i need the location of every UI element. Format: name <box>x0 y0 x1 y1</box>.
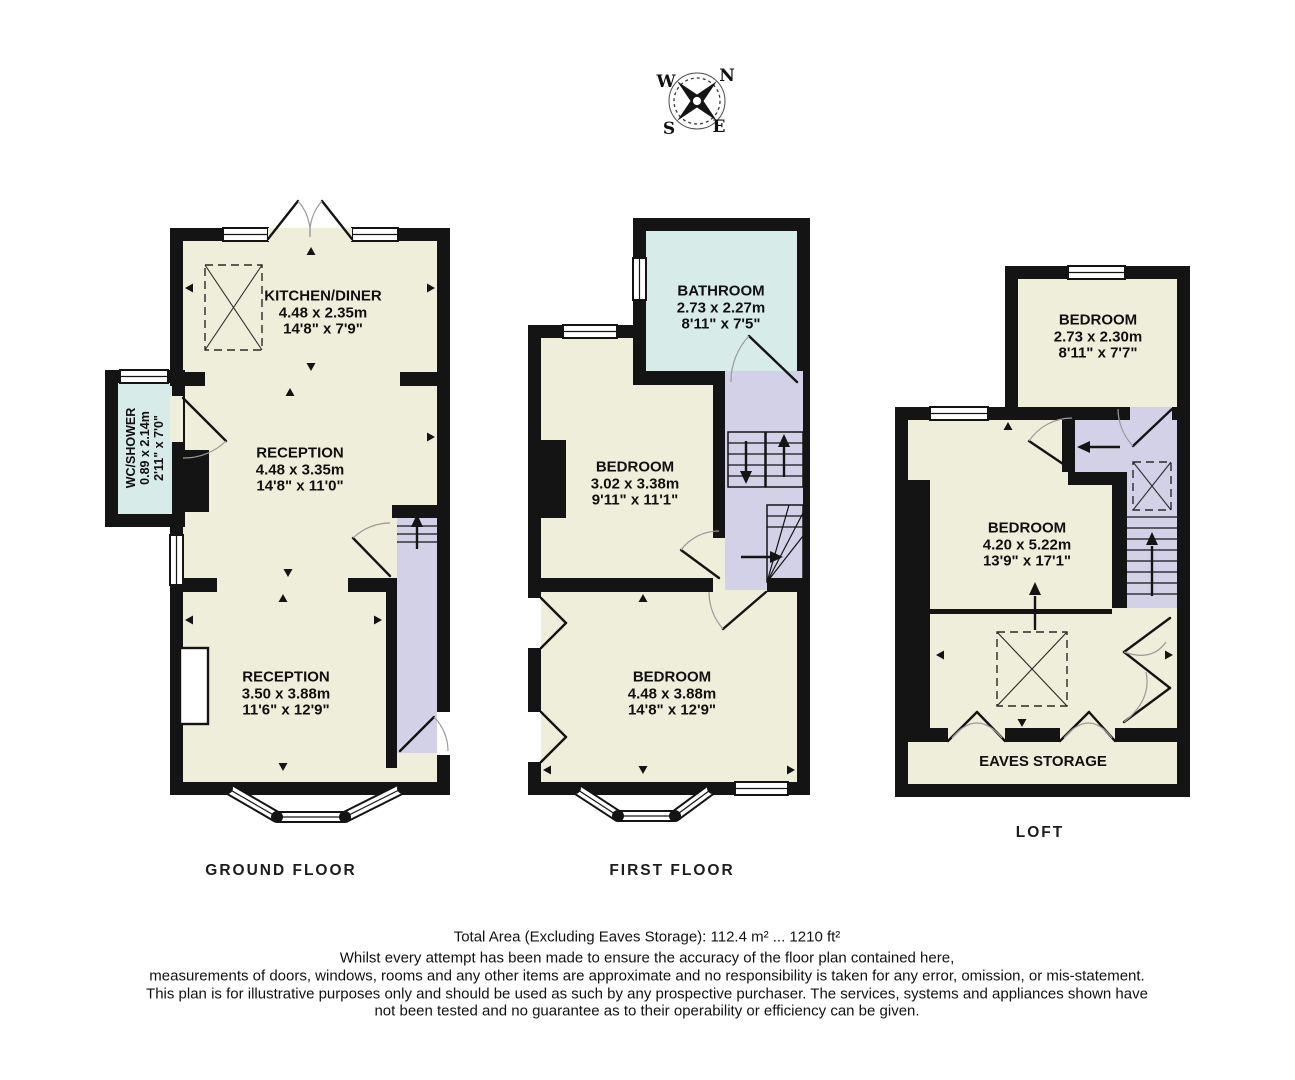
caption-ground-floor: GROUND FLOOR <box>205 862 356 880</box>
room-imperial: 14'8" x 11'0" <box>256 478 344 495</box>
compass-n-label: N <box>719 66 735 86</box>
compass-s-label: S <box>663 119 675 139</box>
total-area-text: Total Area (Excluding Eaves Storage): 11… <box>454 929 841 946</box>
room-label-bedroom-4: BEDROOM 4.20 x 5.22m 13'9" x 17'1" <box>983 520 1071 570</box>
room-name: BATHROOM <box>677 283 765 300</box>
room-name: EAVES STORAGE <box>979 754 1107 771</box>
room-metric: 3.02 x 3.38m <box>591 476 679 493</box>
room-label-wc-shower: WC/SHOWER 0.89 x 2.14m 2'11" x 7'0" <box>124 408 166 489</box>
room-imperial: 11'6" x 12'9" <box>242 702 330 719</box>
compass-w-label: W <box>656 72 675 92</box>
room-name: BEDROOM <box>628 669 716 686</box>
disclaimer-line-2: measurements of doors, windows, rooms an… <box>149 968 1144 985</box>
caption-loft: LOFT <box>1016 824 1064 842</box>
room-label-reception-2: RECEPTION 3.50 x 3.88m 11'6" x 12'9" <box>242 669 330 719</box>
room-metric: 4.48 x 3.88m <box>628 686 716 703</box>
room-name: BEDROOM <box>983 520 1071 537</box>
room-label-eaves-storage: EAVES STORAGE <box>979 754 1107 771</box>
room-imperial: 2'11" x 7'0" <box>152 408 166 489</box>
room-label-bathroom: BATHROOM 2.73 x 2.27m 8'11" x 7'5" <box>677 283 765 333</box>
room-metric: 4.48 x 3.35m <box>256 462 344 479</box>
room-imperial: 9'11" x 11'1" <box>591 492 679 509</box>
room-name: BEDROOM <box>591 459 679 476</box>
room-name: BEDROOM <box>1054 312 1142 329</box>
room-imperial: 14'8" x 7'9" <box>264 321 382 338</box>
room-name: RECEPTION <box>256 445 344 462</box>
room-imperial: 13'9" x 17'1" <box>983 553 1071 570</box>
floorplan-page: N W S E KITCHEN/DINER 4.48 x 2.35m 14'8"… <box>0 0 1295 1080</box>
room-metric: 4.20 x 5.22m <box>983 537 1071 554</box>
room-metric: 3.50 x 3.88m <box>242 686 330 703</box>
disclaimer-line-4: not been tested and no guarantee as to t… <box>374 1003 919 1020</box>
room-metric: 0.89 x 2.14m <box>138 408 152 489</box>
disclaimer-line-1: Whilst every attempt has been made to en… <box>340 950 955 967</box>
room-imperial: 8'11" x 7'7" <box>1054 345 1142 362</box>
room-label-kitchen-diner: KITCHEN/DINER 4.48 x 2.35m 14'8" x 7'9" <box>264 288 382 338</box>
room-label-bedroom-3: BEDROOM 2.73 x 2.30m 8'11" x 7'7" <box>1054 312 1142 362</box>
room-label-bedroom-2: BEDROOM 4.48 x 3.88m 14'8" x 12'9" <box>628 669 716 719</box>
compass-e-label: E <box>713 117 726 137</box>
room-metric: 2.73 x 2.27m <box>677 300 765 317</box>
room-label-bedroom-1: BEDROOM 3.02 x 3.38m 9'11" x 11'1" <box>591 459 679 509</box>
room-name: WC/SHOWER <box>124 408 138 489</box>
room-imperial: 14'8" x 12'9" <box>628 702 716 719</box>
room-name: RECEPTION <box>242 669 330 686</box>
room-metric: 4.48 x 2.35m <box>264 305 382 322</box>
room-label-reception-1: RECEPTION 4.48 x 3.35m 14'8" x 11'0" <box>256 445 344 495</box>
room-name: KITCHEN/DINER <box>264 288 382 305</box>
caption-first-floor: FIRST FLOOR <box>609 862 734 880</box>
room-metric: 2.73 x 2.30m <box>1054 329 1142 346</box>
room-imperial: 8'11" x 7'5" <box>677 316 765 333</box>
plan-first-floor <box>528 218 810 822</box>
floorplan-graphics <box>0 0 1295 1080</box>
disclaimer-line-3: This plan is for illustrative purposes o… <box>146 986 1148 1003</box>
